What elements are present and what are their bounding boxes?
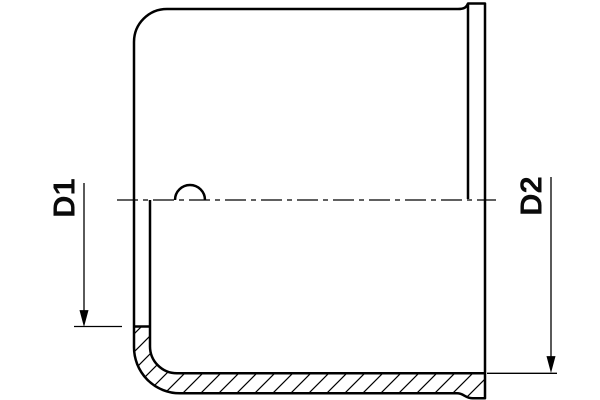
section-hatch-area (134, 327, 485, 399)
dimension-d1: D1 (47, 178, 123, 326)
d1-label: D1 (47, 178, 82, 218)
d2-arrow-icon (547, 357, 555, 372)
dimension-d2: D2 (487, 176, 557, 373)
technical-drawing-canvas: D1 D2 (0, 0, 600, 400)
d2-label: D2 (514, 176, 549, 216)
outer-contour (134, 4, 485, 399)
fitting-section-drawing: D1 D2 (0, 0, 600, 400)
d1-arrow-icon (80, 311, 88, 326)
centerline-dome-feature (175, 185, 205, 200)
inner-bore-profile (150, 200, 485, 373)
